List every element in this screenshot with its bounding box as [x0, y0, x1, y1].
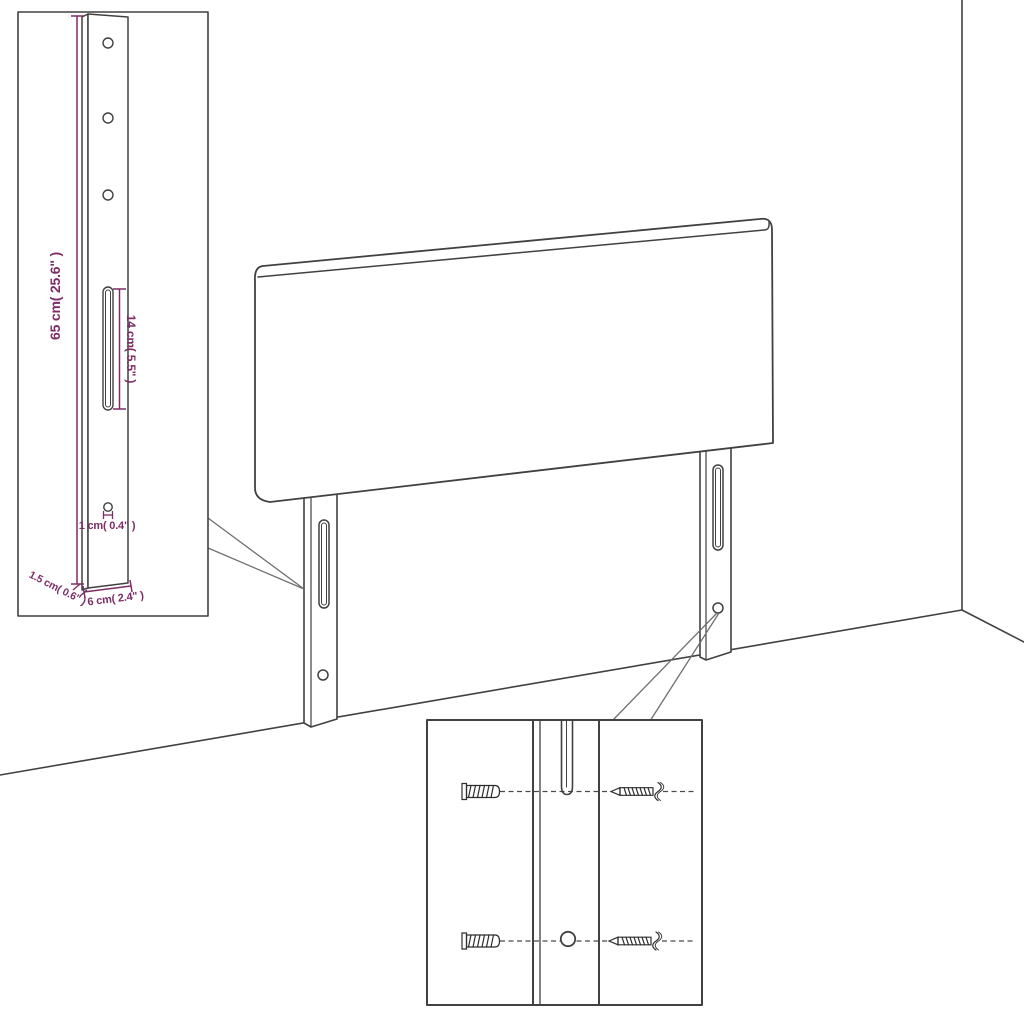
right-leg-hole — [713, 603, 723, 613]
dim-label-slot: 14 cm( 5.5" ) — [124, 315, 138, 384]
bracket-detail-inset: 65 cm( 25.6" ) 14 cm( 5.5" ) 1 cm( 0.4" … — [18, 12, 208, 616]
diagram-canvas: 65 cm( 25.6" ) 14 cm( 5.5" ) 1 cm( 0.4" … — [0, 0, 1024, 1024]
headboard-dimension-diagram: 65 cm( 25.6" ) 14 cm( 5.5" ) 1 cm( 0.4" … — [0, 0, 1024, 1024]
bracket-front-face — [88, 14, 128, 588]
detail-frame — [427, 720, 702, 1005]
headboard-left-leg — [304, 485, 337, 727]
mounting-detail-inset — [427, 720, 702, 1005]
left-leg-slot — [319, 520, 329, 608]
detail-hole — [561, 932, 575, 946]
left-leg-hole — [318, 670, 328, 680]
dim-label-hole: 1 cm( 0.4" ) — [79, 520, 136, 532]
bracket-side-face — [82, 14, 88, 590]
right-leg-slot — [713, 465, 723, 550]
dim-label-height: 65 cm( 25.6" ) — [47, 252, 63, 340]
